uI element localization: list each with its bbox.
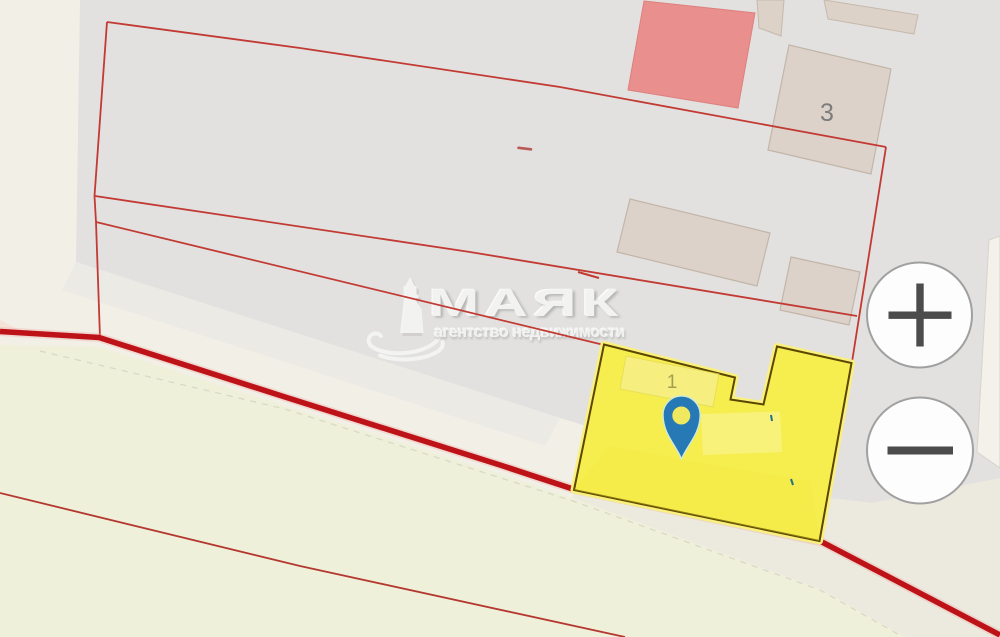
svg-text:МАЯК: МАЯК <box>429 282 624 325</box>
svg-text:3: 3 <box>820 99 834 127</box>
svg-text:1: 1 <box>667 372 678 393</box>
